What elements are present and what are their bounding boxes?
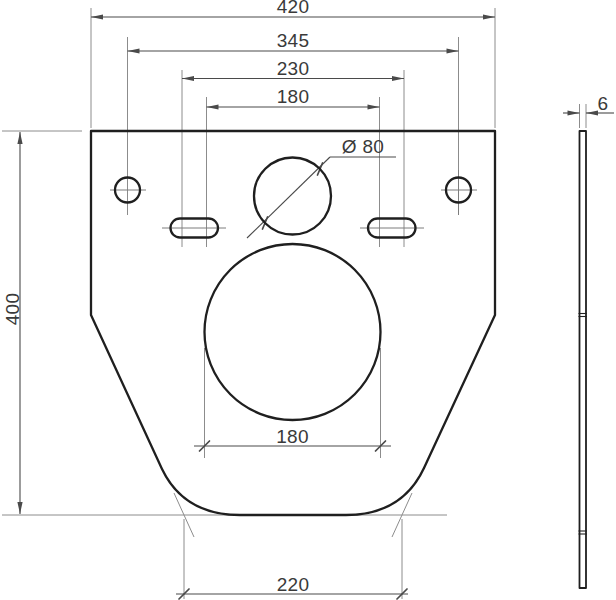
arrowhead <box>392 76 404 81</box>
arrowhead <box>91 14 103 19</box>
front-view <box>91 131 495 515</box>
drawing-canvas: 420 345 230 180 Ø 80 400 180 220 6 <box>0 0 616 600</box>
arrowhead <box>483 14 495 19</box>
arrowhead <box>368 104 380 109</box>
arrowhead <box>586 110 598 115</box>
centerlines <box>110 170 477 228</box>
small-hole-circle <box>254 158 331 235</box>
side-view-profile <box>580 131 587 588</box>
plate-outline <box>91 131 495 515</box>
label-slot-outer: 230 <box>277 58 310 79</box>
label-opening-width: 180 <box>276 426 309 447</box>
label-slot-inner: 180 <box>277 86 310 107</box>
arrowhead <box>128 48 140 53</box>
arrowhead <box>447 48 459 53</box>
arrowhead <box>182 76 194 81</box>
arrowhead <box>207 104 219 109</box>
technical-drawing: 420 345 230 180 Ø 80 400 180 220 6 <box>0 0 616 600</box>
arrowhead <box>568 110 580 115</box>
large-opening-circle <box>205 244 381 420</box>
side-view <box>579 131 588 588</box>
label-hole-centers: 345 <box>277 30 310 51</box>
label-width-total: 420 <box>277 0 310 17</box>
arrowhead <box>17 132 22 144</box>
label-height-total: 400 <box>2 293 23 326</box>
dimension-labels: 420 345 230 180 Ø 80 400 180 220 6 <box>2 0 609 595</box>
dimension-lines <box>20 17 614 594</box>
label-width-bottom: 220 <box>277 574 310 595</box>
label-opening-diameter: Ø 80 <box>342 136 384 157</box>
label-thickness: 6 <box>598 93 609 114</box>
arrowhead <box>17 502 22 514</box>
